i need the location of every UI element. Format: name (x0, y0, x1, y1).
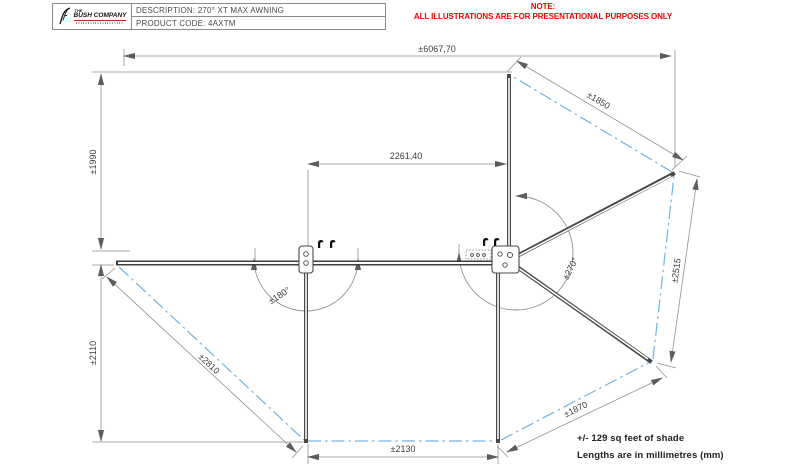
dim-right-edge: ±2515 (669, 258, 682, 284)
extension-lines (92, 49, 700, 464)
dim-rail-length: 2261,40 (390, 151, 423, 161)
dim-sweep-left: ±180° (267, 285, 293, 306)
awning-plan-drawing: ±6067,70 ±1990 2261,40 ±1850 ±2515 ±270°… (0, 0, 800, 473)
units-note: Lengths are in millimetres (mm) (577, 450, 724, 461)
rail-clamp-icons (318, 238, 499, 248)
dim-lower-left-height: ±2110 (88, 341, 98, 365)
mid-bracket (299, 246, 313, 273)
fabric-edge-bottom-right (501, 362, 650, 440)
dimension-labels: ±6067,70 ±1990 2261,40 ±1850 ±2515 ±270°… (88, 44, 683, 454)
dim-overall-width: ±6067,70 (418, 44, 455, 54)
dim-bottom-edge: ±2130 (391, 444, 416, 454)
hardware (299, 238, 519, 273)
drawing-sheet: THE BUSH COMPANY DESCRIPTION: 270° XT MA… (0, 0, 800, 473)
dim-sweep-right: ±270° (561, 256, 581, 282)
dim-upper-left-height: ±1990 (88, 150, 98, 175)
shade-area-note: +/- 129 sq feet of shade (577, 433, 684, 444)
dim-top-right-edge: ±1850 (585, 90, 612, 111)
dimension-lines (101, 56, 697, 457)
fabric-edges (119, 76, 674, 441)
dim-bottom-right-edge: ±1870 (562, 399, 589, 419)
pivot-bracket (492, 246, 519, 273)
awning-structure (116, 76, 673, 441)
